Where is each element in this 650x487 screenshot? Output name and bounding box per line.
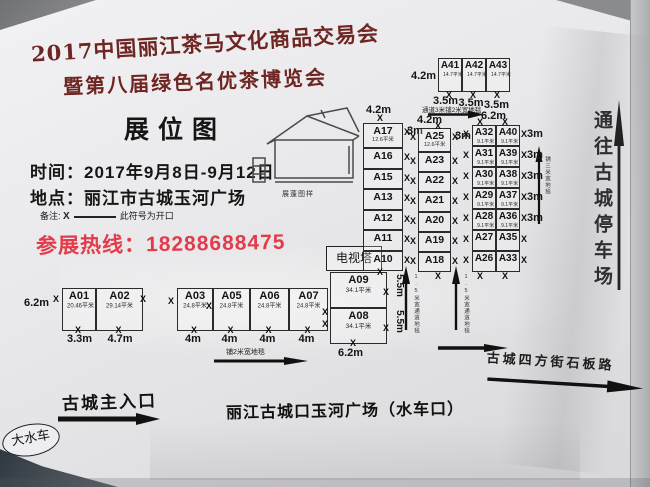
booth-id: A19 [419, 234, 450, 246]
open-marker: X [452, 157, 458, 166]
dim-label: 3.5m [433, 95, 458, 107]
booth-id: A15 [364, 171, 402, 183]
aisle-carpet-note-right: 1.5米宽通道地毯 [462, 274, 470, 334]
booth-id: A30 [473, 169, 495, 181]
time-value: 2017年9月8日-9月12日 [84, 163, 275, 182]
open-marker: X [228, 326, 234, 335]
booth-a30: A309.1平米 [472, 167, 496, 188]
booth-a43: A4314.7平米 [486, 58, 510, 92]
booth-area: 29.14平米 [103, 303, 137, 309]
dim-label: 6.2m [24, 297, 49, 309]
open-marker: X [435, 272, 441, 281]
open-marker: X [477, 272, 483, 281]
booth-id: A35 [497, 232, 519, 244]
open-marker: X [322, 308, 328, 317]
dim-label: 3m [527, 149, 543, 161]
booth-id: A05 [214, 290, 249, 303]
booth-id: A38 [497, 169, 519, 181]
booth-id: A17 [364, 125, 402, 137]
open-marker: X [452, 177, 458, 186]
plaza-label: 丽江古城口玉河广场（水车口） [226, 395, 464, 423]
open-marker: X [410, 177, 416, 186]
open-marker: X [266, 326, 272, 335]
booth-area: 9.1平米 [501, 160, 515, 165]
booth-id: A40 [497, 127, 519, 139]
open-marker: X [477, 118, 483, 127]
open-marker: X [521, 256, 527, 265]
dim-label: 6.2m [338, 347, 363, 359]
open-marker: X [140, 295, 146, 304]
booth-a33: A33 [496, 251, 520, 272]
dim-label: 3m [527, 128, 543, 140]
booth-area: 14.7平米 [443, 72, 457, 77]
booth-a31: A319.1平米 [472, 146, 496, 167]
open-marker: X [502, 118, 508, 127]
booth-id: A43 [487, 60, 509, 72]
paper-shadow-bottom [150, 420, 580, 480]
booth-id: A08 [331, 310, 386, 323]
arrow-aisle-right [449, 266, 463, 330]
open-marker: X [463, 130, 469, 139]
tent-sample-drawing [251, 100, 363, 192]
booth-id: A07 [290, 290, 327, 303]
arrow-carpet-bottom [214, 356, 308, 366]
place-row: 地点：丽江市古城玉河广场 [30, 184, 246, 209]
booth-area: 24.8平米 [218, 303, 244, 309]
hotline: 参展热线：18288688475 [36, 226, 286, 260]
booth-a40: A409.1平米 [496, 125, 520, 146]
dim-label: 3m [527, 212, 543, 224]
note-row: 备注: X此符号为开口 [40, 209, 174, 222]
booth-a13: A13 [363, 189, 403, 210]
note-label: 备注: [40, 211, 61, 221]
booth-id: A16 [364, 150, 402, 162]
open-marker: X [452, 217, 458, 226]
open-marker: X [377, 114, 383, 123]
booth-a09: A0934.1平米 [330, 272, 387, 308]
note-text: 此符号为开口 [120, 211, 174, 221]
booth-id: A32 [473, 127, 495, 139]
time-label: 时间： [30, 163, 84, 182]
booth-id: A10 [364, 253, 402, 265]
booth-id: A39 [497, 148, 519, 160]
open-marker: X [53, 295, 59, 304]
booth-a37: A379.1平米 [496, 188, 520, 209]
booth-a35: A35 [496, 230, 520, 251]
booth-id: A25 [419, 130, 450, 142]
fair-title-line2: 暨第八届绿色名优茶博览会 [30, 60, 361, 100]
open-marker: X [463, 256, 469, 265]
booth-id: A06 [251, 290, 288, 303]
tent-label: 展蓬图样 [282, 189, 314, 199]
booth-id: A22 [419, 174, 450, 186]
open-marker-legend: X [63, 211, 70, 222]
booth-id: A23 [419, 154, 450, 166]
booth-a08: A0834.1平米 [330, 308, 387, 344]
booth-id: A41 [439, 60, 461, 72]
floor-plan-photo: 2017中国丽江茶马文化商品交易会 暨第八届绿色名优茶博览会 展位图 时间：20… [0, 0, 650, 487]
stone-road-label: 古城四方街石板路 [486, 347, 650, 376]
booth-id: A33 [497, 253, 519, 265]
booth-a36: A369.1平米 [496, 209, 520, 230]
booth-id: A11 [364, 232, 402, 244]
aisle-carpet-note-left: 1.5米宽通道地毯 [412, 274, 420, 334]
booth-a26: A26 [472, 251, 496, 272]
booth-a25: A2512.6平米 [418, 128, 451, 152]
booth-a27: A27 [472, 230, 496, 251]
dim-label: 3m [527, 170, 543, 182]
booth-id: A29 [473, 190, 495, 202]
dim-label: 3.5m [459, 97, 484, 109]
open-marker: X [116, 326, 122, 335]
booth-a17: A1712.6平米 [363, 123, 403, 148]
booth-area: 9.1平米 [477, 160, 491, 165]
open-marker: X [410, 197, 416, 206]
place-label: 地点： [30, 189, 84, 208]
booth-a18: A18 [418, 252, 451, 272]
booth-id: A28 [473, 211, 495, 223]
booth-a15: A15 [363, 169, 403, 189]
booth-area: 24.8平米 [256, 303, 284, 309]
time-row: 时间：2017年9月8日-9月12日 [30, 158, 275, 183]
open-marker: X [206, 302, 212, 311]
map-title: 展位图 [124, 110, 226, 146]
booth-a20: A20 [418, 212, 451, 232]
booth-area: 9.1平米 [501, 181, 515, 186]
open-marker: X [75, 326, 81, 335]
dim-label: 5.5m [394, 310, 405, 333]
booth-area: 14.7平米 [467, 72, 481, 77]
arrow-parking [610, 98, 628, 290]
dim-label: 5.5m [394, 274, 405, 297]
open-marker: X [435, 122, 441, 131]
main-entrance-label: 古城主入口 [62, 386, 158, 414]
open-marker: X [410, 133, 416, 142]
carpet-note-right: 铺三米宽地毯 [543, 156, 551, 195]
booth-area: 9.1平米 [477, 139, 491, 144]
photo-edge-bottom [0, 478, 650, 487]
booth-id: A01 [63, 290, 95, 303]
booth-id: A36 [497, 211, 519, 223]
open-marker: X [452, 257, 458, 266]
open-marker: X [410, 237, 416, 246]
booth-area: 9.1平米 [477, 181, 491, 186]
booth-area: 9.1平米 [501, 139, 515, 144]
booth-a16: A16 [363, 148, 403, 169]
booth-a29: A299.1平米 [472, 188, 496, 209]
booth-area: 14.7平米 [491, 72, 505, 77]
open-marker: X [305, 326, 311, 335]
booth-area: 24.8平米 [182, 303, 208, 309]
booth-a23: A23 [418, 152, 451, 172]
dim-label: 4.2m [411, 70, 436, 82]
booth-area: 9.1平米 [501, 202, 515, 207]
open-marker: X [463, 193, 469, 202]
open-marker: X [463, 172, 469, 181]
open-marker: X [452, 237, 458, 246]
booth-a22: A22 [418, 172, 451, 192]
booth-a41: A4114.7平米 [438, 58, 462, 92]
booth-id: A42 [463, 60, 485, 72]
open-marker: X [168, 297, 174, 306]
booth-a11: A11 [363, 230, 403, 251]
booth-id: A37 [497, 190, 519, 202]
booth-a39: A399.1平米 [496, 146, 520, 167]
open-marker: X [463, 235, 469, 244]
booth-area: 20.46平米 [67, 303, 91, 309]
place-value: 丽江市古城玉河广场 [84, 189, 246, 208]
open-marker: X [410, 217, 416, 226]
booth-area: 34.1平米 [336, 323, 381, 330]
booth-a42: A4214.7平米 [462, 58, 486, 92]
booth-id: A26 [473, 253, 495, 265]
booth-area: 9.1平米 [477, 223, 491, 228]
booth-id: A18 [419, 254, 450, 266]
open-marker: X [463, 151, 469, 160]
open-marker: X [383, 288, 389, 297]
booth-id: A13 [364, 191, 402, 203]
booth-area: 9.1平米 [501, 223, 515, 228]
open-marker: X [452, 197, 458, 206]
booth-a28: A289.1平米 [472, 209, 496, 230]
note-line [74, 216, 116, 218]
booth-a19: A19 [418, 232, 451, 252]
dim-label: 3m [527, 191, 543, 203]
open-marker: X [521, 235, 527, 244]
booth-id: A12 [364, 212, 402, 224]
booth-id: A02 [97, 290, 142, 303]
booth-id: A21 [419, 194, 450, 206]
open-marker: X [377, 268, 383, 277]
booth-id: A27 [473, 232, 495, 244]
booth-a21: A21 [418, 192, 451, 212]
open-marker: X [383, 324, 389, 333]
open-marker: X [191, 326, 197, 335]
booth-area: 34.1平米 [336, 287, 381, 294]
booth-id: A31 [473, 148, 495, 160]
open-marker: X [322, 320, 328, 329]
open-marker: X [463, 214, 469, 223]
booth-a12: A12 [363, 210, 403, 230]
booth-area: 24.8平米 [295, 303, 323, 309]
booth-area: 12.6平米 [424, 142, 445, 148]
arrow-main-entrance [58, 412, 160, 426]
booth-id: A20 [419, 214, 450, 226]
open-marker: X [410, 257, 416, 266]
photo-corner-top-left [0, 0, 96, 30]
open-marker: X [502, 272, 508, 281]
booth-a38: A389.1平米 [496, 167, 520, 188]
open-marker: X [410, 157, 416, 166]
booth-area: 12.6平米 [370, 137, 396, 143]
booth-area: 9.1平米 [477, 202, 491, 207]
dim-label: 3.5m [484, 99, 509, 111]
booth-a32: A329.1平米 [472, 125, 496, 146]
